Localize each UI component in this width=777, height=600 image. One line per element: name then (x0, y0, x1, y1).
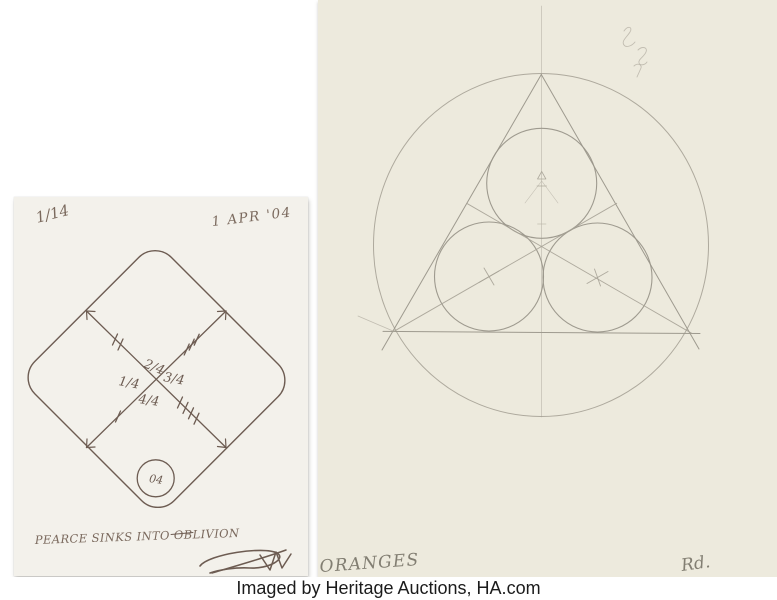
signature-initials: Rd. (679, 552, 712, 576)
inscription: PEARCE SINKS INTO OBLIVION (34, 526, 241, 547)
date-inscription: 1 APR '04 (211, 204, 293, 230)
inscribed-triangle (382, 75, 700, 351)
corner-circle-label: 04 (148, 472, 164, 487)
right-drawing-sheet: ORANGES Rd. (318, 0, 777, 577)
fraction-bottom: 4/4 (136, 392, 160, 410)
pencil-scribbles (623, 27, 647, 77)
center-mark-left-circle (479, 268, 499, 285)
auction-photo: 1/14 1 APR '04 (0, 0, 777, 600)
edition-number: 1/14 (34, 201, 71, 227)
fraction-right: 3/4 (162, 370, 185, 388)
artist-signature-scrawl (200, 550, 291, 573)
caption-bar: Imaged by Heritage Auctions, HA.com (0, 577, 777, 600)
construction-cevians (358, 203, 692, 333)
outer-circle (374, 74, 709, 417)
fraction-top: 2/4 (141, 356, 167, 378)
title-inscription: ORANGES (319, 550, 420, 577)
fraction-left: 1/4 (117, 374, 140, 392)
left-drawing-sheet: 1/14 1 APR '04 (14, 197, 308, 576)
right-drawing: ORANGES Rd. (318, 0, 777, 577)
tally-marks-upper-right (184, 334, 199, 355)
watermark-text: Imaged by Heritage Auctions, HA.com (236, 577, 540, 600)
tally-marks-lower-left (116, 411, 121, 422)
left-drawing: 1/14 1 APR '04 (14, 197, 308, 576)
cross-lines (87, 311, 227, 448)
